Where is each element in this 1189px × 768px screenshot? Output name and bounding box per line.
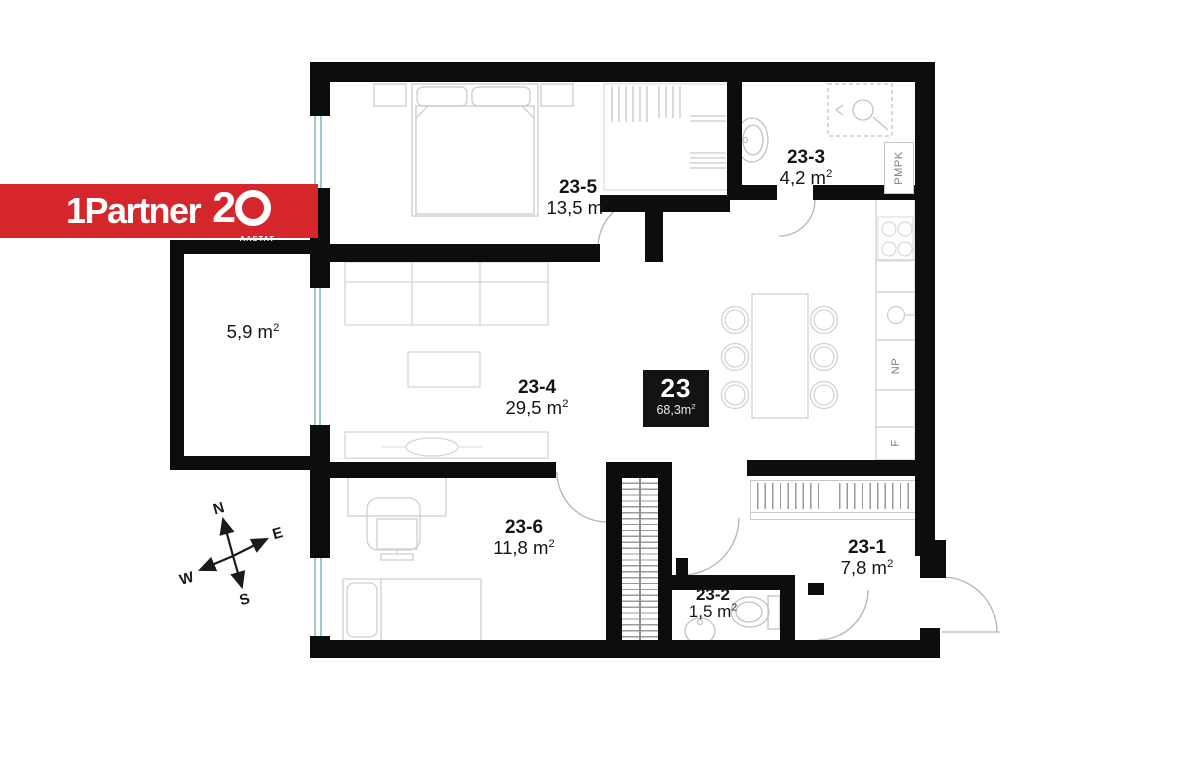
hall-closet (750, 480, 922, 520)
chair-seat (814, 310, 834, 330)
desk-chair (367, 498, 420, 550)
double-bed (412, 84, 538, 216)
room-area: 7,8 m2 (841, 558, 894, 579)
wall-bath-bottom-a (727, 185, 777, 200)
burner (898, 242, 912, 256)
f-label: F (890, 439, 902, 446)
nightstand-left (374, 84, 406, 106)
compass-needle-w (200, 556, 233, 570)
room-id: 23-2 (689, 586, 737, 603)
pmpk-label: PMPK (893, 151, 905, 185)
balcony-stub-bottom (310, 425, 330, 470)
chair-seat (725, 385, 745, 405)
room-label-23-1: 23-1 7,8 m2 (841, 537, 894, 579)
wall-door-stub-hall (808, 583, 824, 595)
wall-left-d (310, 636, 330, 658)
room-id: 23-1 (841, 537, 894, 558)
anniversary-suffix: AASTAT (240, 234, 275, 243)
wall-right (915, 62, 935, 556)
single-bed (343, 579, 481, 641)
unit-number: 23 (643, 373, 709, 404)
room-id: 23-6 (493, 517, 555, 538)
anniversary-zero-ring-icon (235, 190, 271, 226)
wall-entry-stub (920, 540, 946, 578)
floorplan-canvas: 23-5 13,5 m2 23-3 4,2 m2 23-4 29,5 m2 23… (0, 0, 1189, 768)
door-arc-corridor (682, 518, 739, 575)
door-arc-hall (818, 590, 868, 640)
sofa-cushion-lines (345, 262, 548, 325)
room-area: 13,5 m2 (547, 198, 610, 219)
monitor (377, 519, 417, 549)
room-label-23-2: 23-2 1,5 m2 (689, 586, 737, 620)
f-box: F (878, 424, 914, 462)
wall-shaft-left (606, 478, 622, 642)
unit-badge: 23 68,3m2 (643, 370, 709, 427)
monitor-base (381, 554, 413, 560)
compass-needle-n (223, 519, 233, 556)
wall-bath-left (727, 82, 742, 192)
shower-area (828, 84, 892, 136)
room-id: 23-4 (506, 377, 569, 398)
door-arc-23-3 (779, 200, 815, 236)
compass-s: S (238, 590, 252, 609)
burner (898, 222, 912, 236)
compass-n: N (211, 499, 226, 518)
closet-23-5 (604, 84, 728, 190)
partner-logo-banner: 1Partner 2 AASTAT (0, 184, 318, 238)
chair-seat (725, 347, 745, 367)
bed-fold-lines (416, 106, 534, 118)
balcony-area: 5,9 m2 (227, 322, 280, 343)
wall-shaft-top (606, 462, 672, 478)
shower-head-icon (853, 100, 873, 120)
toilet-bowl-inner (736, 602, 762, 622)
wall-left-a (310, 62, 330, 116)
toilet-tank (768, 596, 780, 629)
wall-wc-right (780, 575, 795, 642)
partner-logo-text: 1Partner (66, 190, 200, 232)
shower-drain-mark (836, 105, 843, 115)
burner (882, 242, 896, 256)
compass-e: E (271, 524, 285, 543)
dining-table (752, 294, 808, 418)
compass-rose: N E W S (172, 498, 290, 612)
compass-w: W (178, 568, 197, 588)
door-arc-entrance (942, 577, 1000, 632)
balcony-wall-left (170, 240, 184, 470)
compass-needle-e (233, 539, 267, 556)
room-area: 1,5 m2 (689, 603, 737, 620)
room-id: 23-5 (547, 177, 610, 198)
closet-hangers (757, 483, 823, 509)
wall-shaft-right (658, 478, 672, 642)
unit-total-area: 68,3m2 (643, 403, 709, 417)
anniversary-20-logo: 2 AASTAT (212, 184, 271, 239)
np-label: NP (890, 358, 902, 374)
wall-hall-top (747, 460, 935, 476)
kitchen-counter (876, 198, 915, 460)
room-label-23-5: 23-5 13,5 m2 (547, 177, 610, 219)
single-bed-pillow (347, 583, 377, 637)
pmpk-box: PMPK (884, 142, 914, 194)
anniversary-digit: 2 (212, 184, 234, 233)
compass-needle-s (233, 556, 242, 587)
chair-seat (814, 385, 834, 405)
wall-left-c (310, 470, 330, 558)
room-area: 4,2 m2 (780, 168, 833, 189)
balcony-stub-top (310, 244, 330, 288)
closet-hangers (839, 483, 915, 509)
balcony-label: 5,9 m2 (227, 322, 280, 343)
np-box: NP (878, 344, 914, 388)
pillow-left (417, 87, 467, 106)
nightstand-right (541, 84, 573, 106)
sofa (345, 262, 548, 325)
room-id: 23-3 (780, 147, 833, 168)
door-arc-23-6 (557, 472, 607, 522)
room-label-23-4: 23-4 29,5 m2 (506, 377, 569, 419)
wall-bottom (310, 640, 940, 658)
desk (348, 473, 446, 516)
room-area: 29,5 m2 (506, 398, 569, 419)
room-label-23-3: 23-3 4,2 m2 (780, 147, 833, 189)
kitchen-sink (888, 307, 905, 324)
wall-closet-bottom (600, 195, 730, 212)
wardrobe-23-6 (622, 478, 658, 640)
shower-arm (873, 117, 888, 130)
coffee-table (408, 352, 480, 387)
stove (878, 217, 913, 261)
burner (882, 222, 896, 236)
balcony-wall-bottom (170, 456, 330, 470)
room-label-23-6: 23-6 11,8 m2 (493, 517, 555, 559)
window-23-6 (310, 558, 330, 636)
window-23-5 (310, 116, 330, 188)
wall-23-6-top (330, 462, 556, 478)
wall-door-stub-corridor (676, 558, 688, 575)
wall-top (310, 62, 935, 82)
pillow-right (472, 87, 530, 106)
bath-sink-basin (743, 125, 763, 155)
tv (406, 438, 458, 456)
wall-23-5-bottom (330, 244, 600, 262)
chair-seat (814, 347, 834, 367)
room-area: 11,8 m2 (493, 538, 555, 559)
balcony-window (311, 288, 325, 425)
bed-sheet (416, 106, 534, 214)
chair-seat (725, 310, 745, 330)
wall-bottom-notch (920, 628, 940, 642)
